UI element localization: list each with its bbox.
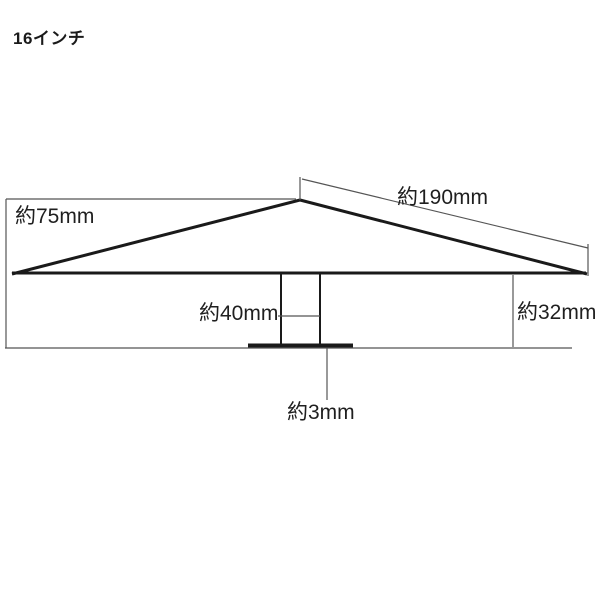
dim-label-total-height: 約75mm — [15, 206, 94, 227]
dim-label-slope-length: 約190mm — [397, 187, 488, 208]
dim-label-edge-height: 約32mm — [517, 302, 596, 323]
product-dimension-diagram: 16インチ 約75mm 約190mm 約32mm 約40mm 約3mm — [0, 0, 600, 600]
umbrella-cross-section-drawing — [0, 0, 600, 600]
dim-label-base-thickness: 約3mm — [287, 402, 355, 423]
dim-label-pole-width: 約40mm — [199, 303, 278, 324]
